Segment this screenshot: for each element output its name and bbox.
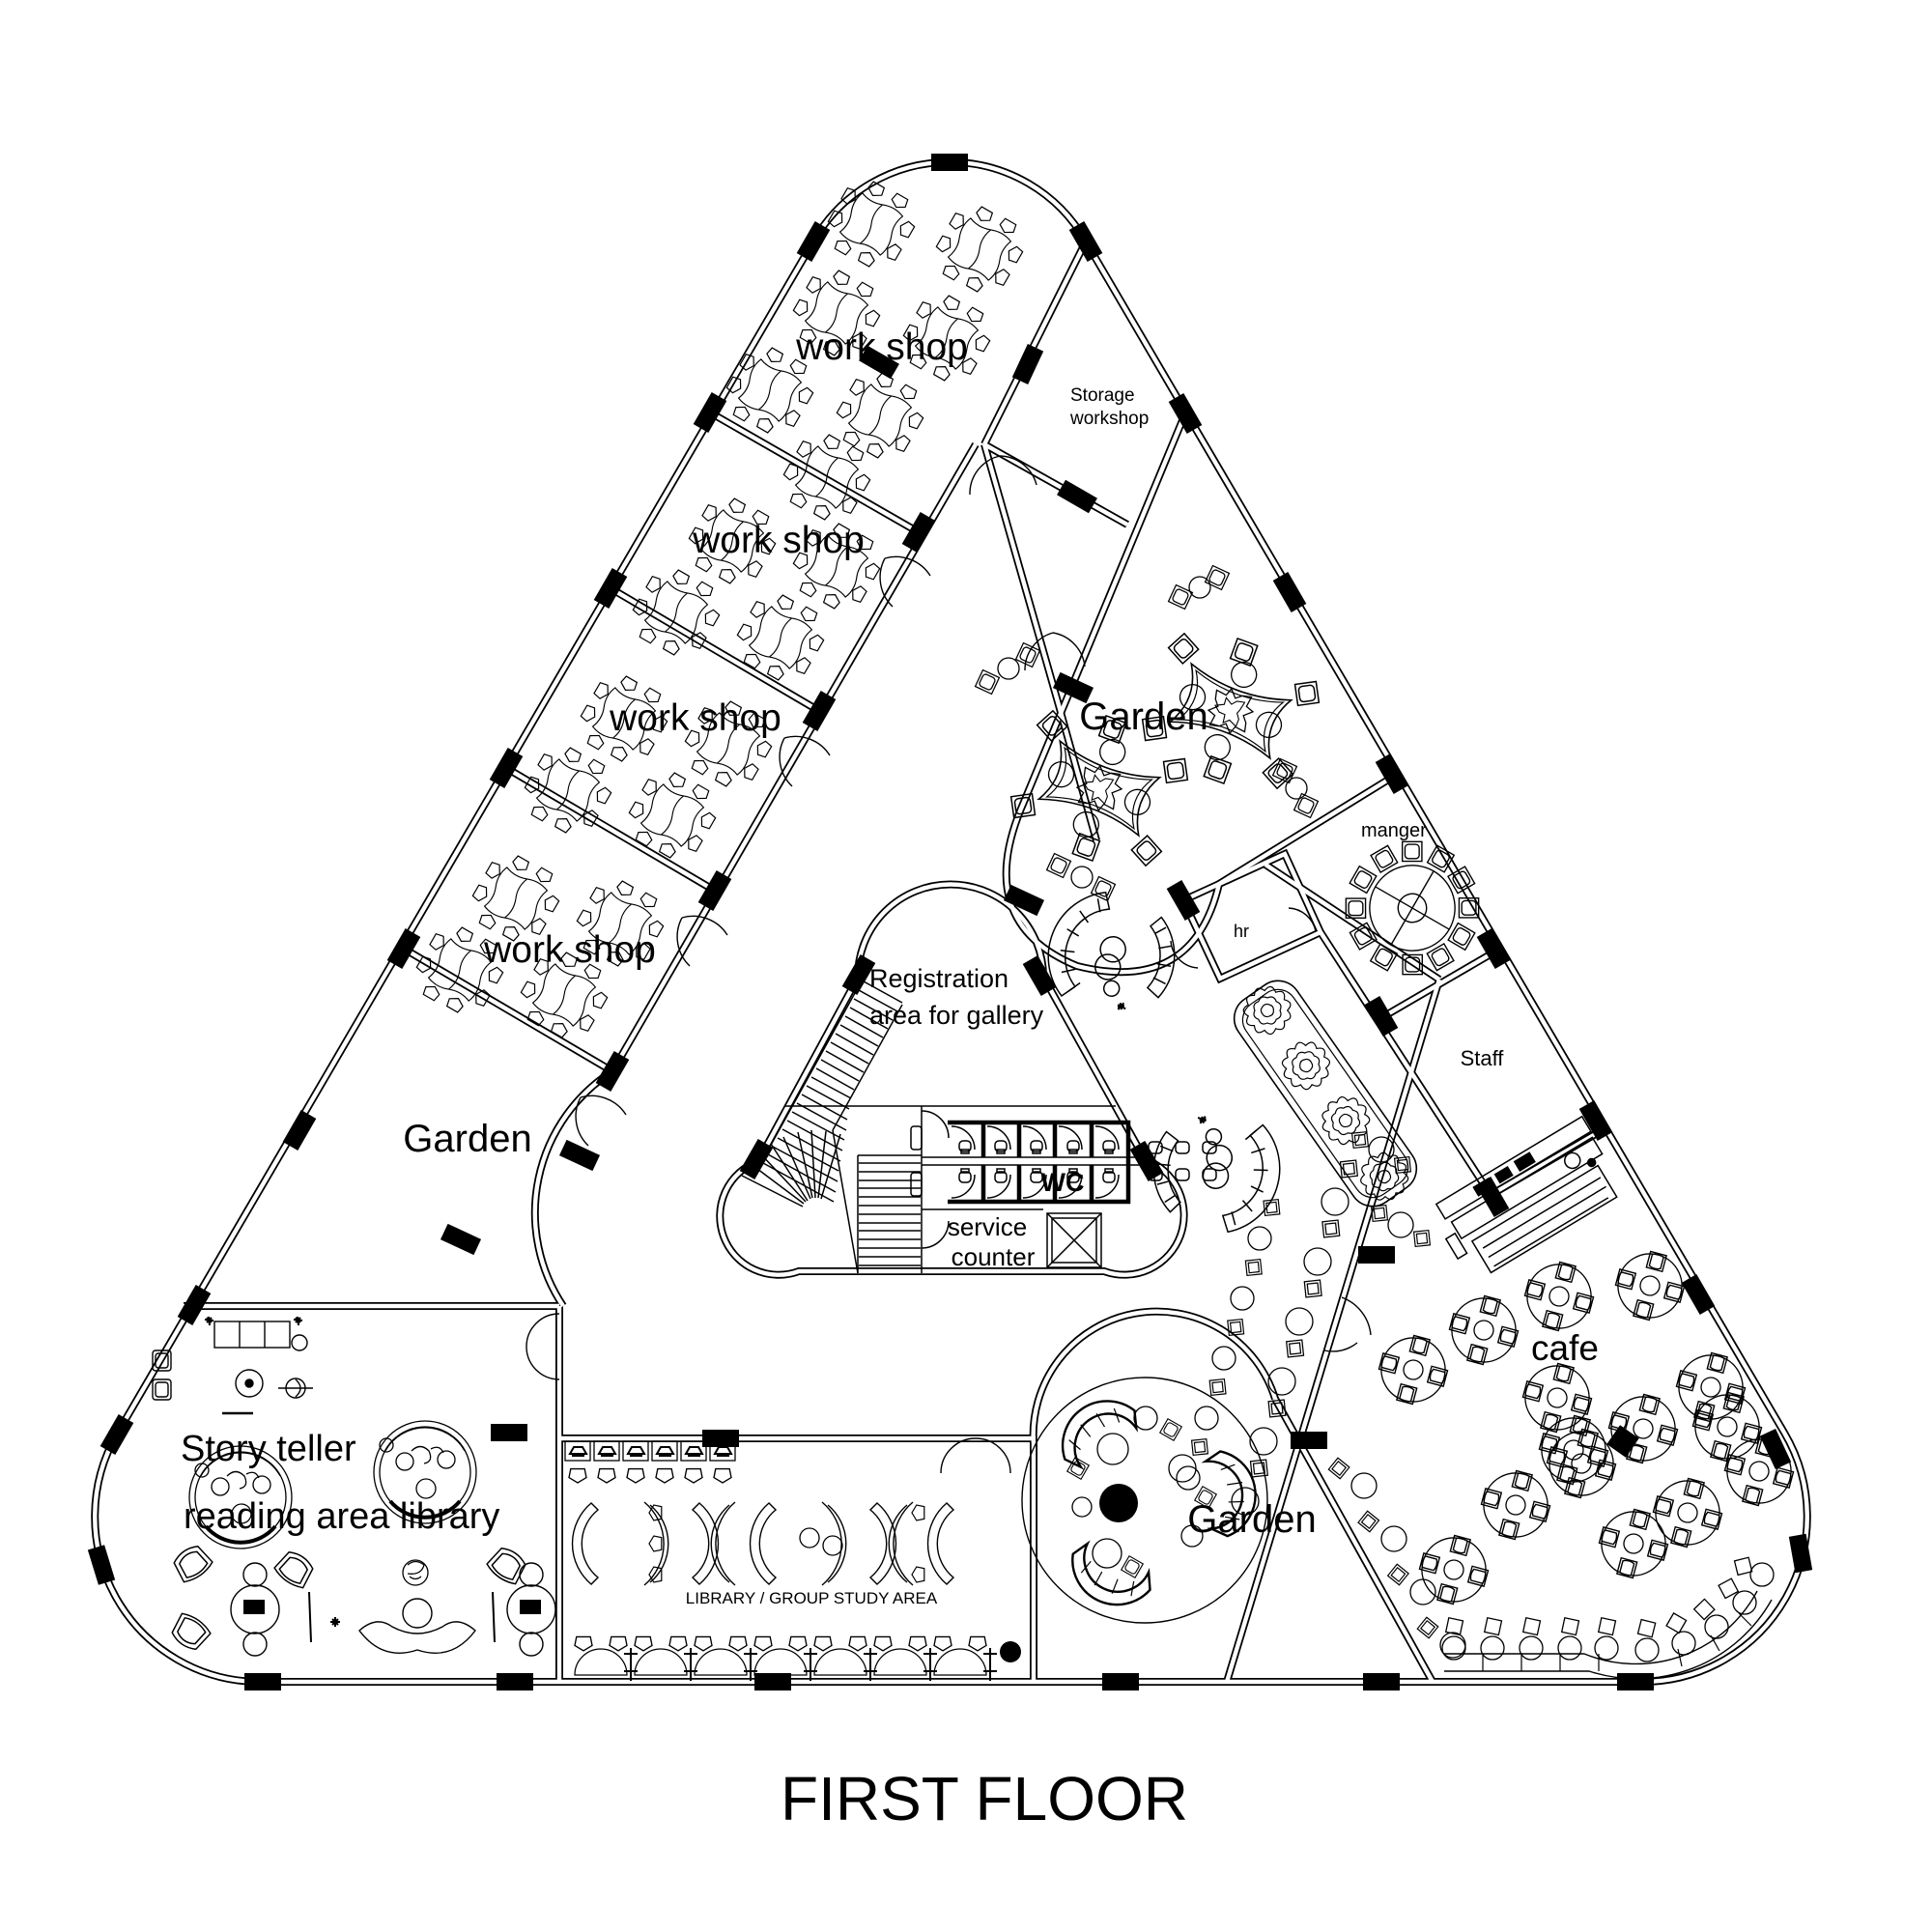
- svg-text:Registration: Registration: [869, 964, 1009, 993]
- svg-text:work shop: work shop: [609, 697, 781, 739]
- svg-text:work shop: work shop: [692, 520, 865, 561]
- svg-text:manger: manger: [1361, 820, 1427, 841]
- svg-text:counter: counter: [952, 1242, 1036, 1271]
- svg-text:FIRST FLOOR: FIRST FLOOR: [781, 1764, 1188, 1833]
- svg-text:service: service: [948, 1212, 1027, 1241]
- svg-text:Garden: Garden: [1079, 696, 1207, 738]
- svg-text:work shop: work shop: [795, 327, 968, 368]
- svg-text:hr: hr: [1234, 922, 1249, 941]
- svg-text:Staff: Staff: [1461, 1046, 1505, 1070]
- svg-text:reading area library: reading area library: [184, 1496, 499, 1537]
- svg-text:area for gallery: area for gallery: [869, 1001, 1044, 1030]
- svg-text:Garden: Garden: [1187, 1498, 1316, 1541]
- svg-text:Story teller: Story teller: [181, 1429, 356, 1469]
- svg-text:Storage: Storage: [1070, 385, 1135, 406]
- svg-text:WC: WC: [1041, 1168, 1085, 1197]
- svg-text:cafe: cafe: [1531, 1328, 1599, 1368]
- svg-text:LIBRARY / GROUP STUDY AREA: LIBRARY / GROUP STUDY AREA: [686, 1589, 938, 1607]
- svg-text:workshop: workshop: [1069, 409, 1149, 429]
- svg-text:Garden: Garden: [403, 1118, 531, 1160]
- svg-text:work shop: work shop: [483, 929, 656, 971]
